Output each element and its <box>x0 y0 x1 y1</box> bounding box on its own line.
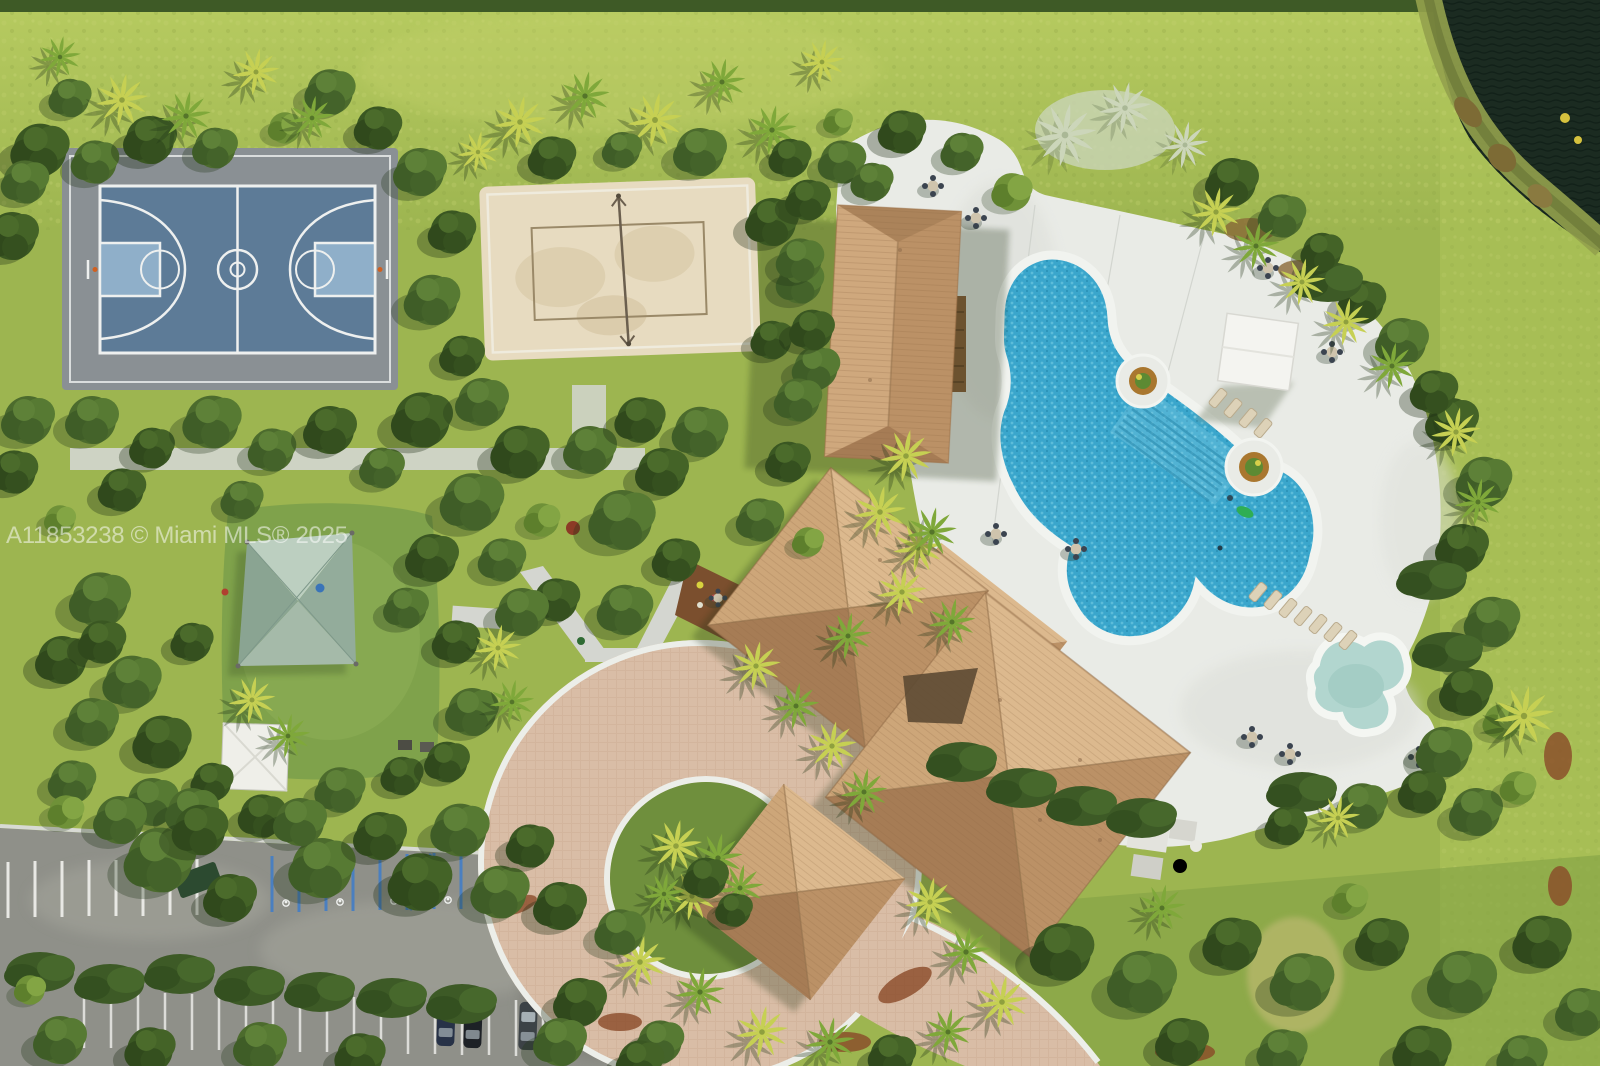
ellipse <box>1544 732 1572 780</box>
ellipse <box>598 1013 642 1031</box>
circle <box>236 664 241 669</box>
circle <box>1255 460 1261 466</box>
aerial-photo: A11853238 © Miami MLS® 2025 <box>0 0 1600 1066</box>
ellipse <box>1548 866 1572 906</box>
rect <box>398 740 412 750</box>
circle <box>1173 859 1187 873</box>
circle <box>354 662 359 667</box>
circle <box>998 698 1002 702</box>
sand-volleyball-court <box>479 177 761 361</box>
courtKey <box>100 243 160 296</box>
shade-sail-canopy <box>236 531 359 669</box>
basketball-hoop <box>93 267 98 272</box>
circle <box>447 898 450 901</box>
circle <box>285 901 288 904</box>
circle <box>1098 838 1102 842</box>
circle <box>878 558 882 562</box>
circle <box>697 582 704 589</box>
circle <box>898 248 902 252</box>
rect <box>1131 854 1164 880</box>
circle <box>1136 374 1142 380</box>
pool-cabana <box>1218 313 1299 390</box>
play-toy <box>222 589 229 596</box>
swimmer <box>1218 546 1223 551</box>
basketball-court <box>62 148 398 390</box>
circle <box>350 531 355 536</box>
scene-svg: A11853238 © Miami MLS® 2025 <box>0 0 1600 1066</box>
circle <box>1078 758 1082 762</box>
swimmer <box>1227 495 1233 501</box>
circle <box>868 378 872 382</box>
trash-can <box>577 637 585 645</box>
pool-house-roof <box>824 205 961 463</box>
circle <box>1038 818 1042 822</box>
circle <box>1574 136 1582 144</box>
courtKey <box>315 243 375 296</box>
circle <box>339 900 342 903</box>
play-toy <box>316 584 325 593</box>
circle <box>697 602 703 608</box>
mls-watermark: A11853238 © Miami MLS® 2025 <box>6 522 348 549</box>
basketball-hoop <box>378 267 383 272</box>
rect <box>0 0 1600 12</box>
ellipse <box>1328 664 1384 708</box>
circle <box>1190 840 1202 852</box>
circle <box>1245 458 1263 476</box>
circle <box>1560 113 1570 123</box>
ellipse <box>360 10 880 130</box>
